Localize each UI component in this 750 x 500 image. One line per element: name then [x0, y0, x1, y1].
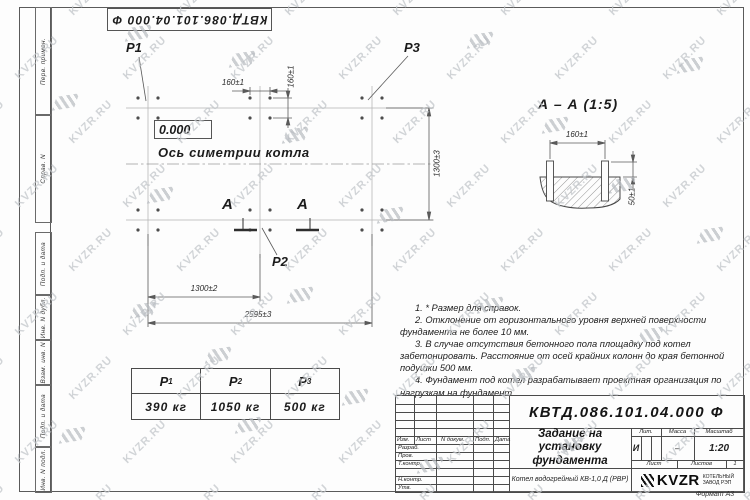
margin-box-podp-data-1: Подп. и дата [35, 232, 52, 296]
kvzr-logo-text: KVZR [657, 472, 700, 489]
load-value-p3: 500 кг [271, 394, 339, 419]
scale-label: Масштаб [694, 428, 744, 436]
section-view-title: А – А (1:5) [525, 96, 631, 112]
document-title: Задание на установку фундамента [509, 428, 631, 468]
elevation-value: 0.000 [155, 123, 190, 137]
col-date-label: Дата [495, 437, 510, 443]
margin-label: Перв. примен. [40, 38, 47, 85]
dim-1300-bottom: 1300±2 [182, 284, 226, 293]
load-table-header-p2: P2 [201, 369, 270, 394]
rotated-designation-box: КВТД.086.101.04.000 Ф [107, 8, 272, 31]
margin-box-inv-podl: Инв. N подл. [35, 446, 52, 493]
product-name: Котел водогрейный КВ-1,0 Д (РВР) [509, 468, 631, 492]
company-name-line2: ЗАВОД РЭП [703, 480, 734, 486]
margin-box-perv-primen: Перв. примен. [35, 7, 52, 116]
row-nkontr-label: Н.контр. [398, 477, 423, 483]
kvzr-logo-icon [641, 474, 654, 487]
dim-160-side: 160±1 [287, 57, 296, 97]
col-doc-label: N докум. [441, 437, 464, 443]
note-1: 1. * Размер для справок. [400, 302, 744, 314]
plan-center-lines [126, 86, 434, 258]
section-letter-right: А [297, 196, 308, 213]
elevation-mark-box: 0.000 [154, 120, 212, 139]
margin-box-inv-dubl: Инв. N дубл. [35, 294, 52, 341]
dim-160-top: 160±1 [213, 78, 253, 87]
margin-label: Справ. N [40, 154, 47, 184]
margin-box-sprav-n: Справ. N [35, 114, 52, 223]
note-2: 2. Отклонение от горизонтального уровня … [400, 314, 744, 338]
dim-2595: 2595±3 [236, 310, 280, 319]
margin-label: Подп. и дата [40, 394, 47, 438]
load-table-header-p3: P3 [271, 369, 339, 394]
mass-label: Масса [661, 428, 694, 436]
load-value-p1: 390 кг [132, 394, 201, 419]
load-point-p1-label: P1 [126, 40, 142, 55]
scale-value: 1:20 [694, 436, 744, 460]
row-razrab-label: Разраб. [398, 445, 419, 451]
lit-value: И [631, 436, 641, 460]
load-point-p2-label: P2 [272, 254, 288, 269]
margin-label: Инв. N подл. [40, 449, 47, 491]
row-tkontr-label: Т.контр. [398, 461, 421, 467]
sheets-value: 1 [726, 460, 744, 468]
company-name: КОТЕЛЬНЫЙ ЗАВОД РЭП [703, 474, 734, 487]
rotated-designation-text: КВТД.086.101.04.000 Ф [108, 9, 271, 30]
row-prov-label: Пров. [398, 453, 413, 459]
document-designation: КВТД.086.101.04.000 Ф [509, 396, 744, 428]
title-block: Изм. Лист N докум. Подп. Дата Разраб. Пр… [395, 395, 745, 493]
dim-50-section: 50±1 [628, 177, 637, 217]
margin-box-vzam-inv: Взам. инв. N [35, 339, 52, 386]
gost-drawing-sheet: КВТД.086.101.04.000 Ф Перв. примен. Спра… [0, 0, 750, 500]
col-sign-label: Подп. [475, 437, 490, 443]
load-table-value-row: 390 кг 1050 кг 500 кг [132, 394, 339, 419]
margin-label: Взам. инв. N [40, 342, 47, 383]
mass-value: – [661, 436, 694, 460]
section-letter-left: А [222, 196, 233, 213]
load-value-p2: 1050 кг [201, 394, 270, 419]
load-table-header-p1: P1 [132, 369, 201, 394]
anchor-bolt-right [602, 161, 609, 201]
row-utv-label: Утв. [398, 485, 411, 491]
dim-160-section: 160±1 [557, 130, 597, 139]
lit-label: Лит. [631, 428, 661, 436]
sheet-label: Лист [631, 460, 677, 468]
margin-label: Подп. и дата [40, 242, 47, 286]
sheets-label: Листов [677, 460, 726, 468]
symmetry-axis-label: Ось симетрии котла [158, 145, 310, 160]
margin-label: Инв. N дубл. [40, 297, 47, 338]
col-list-label: Лист [416, 437, 431, 443]
col-izm-label: Изм. [397, 437, 409, 443]
anchor-bolt-left [547, 161, 554, 201]
section-view [540, 140, 637, 208]
load-point-p3-label: P3 [404, 40, 420, 55]
company-cell: KVZR КОТЕЛЬНЫЙ ЗАВОД РЭП [631, 468, 744, 492]
load-table-header-row: P1 P2 P3 [132, 369, 339, 394]
note-3: 3. В случае отсутствия бетонного пола пл… [400, 338, 744, 374]
technical-notes: 1. * Размер для справок. 2. Отклонение о… [400, 302, 744, 399]
load-table: P1 P2 P3 390 кг 1050 кг 500 кг [131, 368, 340, 420]
dim-1300-right: 1300±3 [433, 142, 442, 186]
margin-box-podp-data-2: Подп. и дата [35, 384, 52, 448]
format-label: Формат А3 [660, 491, 750, 498]
